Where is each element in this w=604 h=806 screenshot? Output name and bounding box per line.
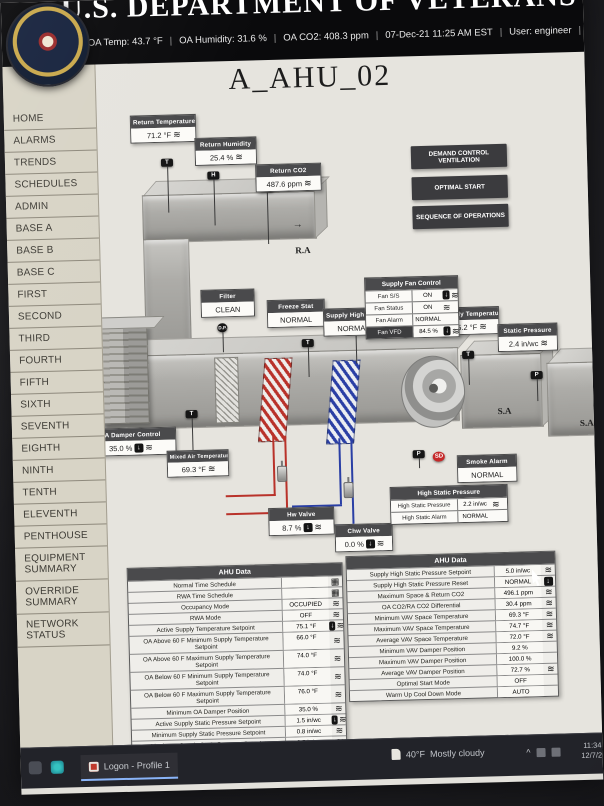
clock-date: 12/7/2021 bbox=[563, 750, 604, 761]
row-icons bbox=[544, 686, 558, 696]
ahu-data-table-right: AHU Data Supply High Static Pressure Set… bbox=[345, 551, 559, 702]
sidebar-item-tenth[interactable]: TENTH bbox=[13, 480, 106, 504]
row-icons: ≋ bbox=[329, 609, 343, 619]
main-canvas: A_AHU_02 DEMAND CONTROL VENTILATION OPTI… bbox=[94, 52, 602, 749]
trend-zigzag-icon[interactable]: ≋ bbox=[545, 600, 552, 606]
box-value[interactable]: 35.0 % bbox=[109, 443, 133, 453]
sidebar-item-base-a[interactable]: BASE A bbox=[6, 216, 99, 240]
row-icons: ↓≋ bbox=[442, 289, 457, 300]
sidebar-item-network-status[interactable]: NETWORK STATUS bbox=[17, 612, 110, 647]
trend-zigzag-icon[interactable]: ≋ bbox=[547, 666, 554, 672]
trend-zigzag-icon[interactable]: ≋ bbox=[332, 600, 339, 606]
sidebar-item-base-c[interactable]: BASE C bbox=[8, 260, 101, 284]
trend-zigzag-icon[interactable]: ≋ bbox=[452, 328, 459, 334]
sidebar-item-base-b[interactable]: BASE B bbox=[7, 238, 100, 262]
trend-zigzag-icon[interactable]: ≋ bbox=[173, 131, 180, 137]
trend-zigzag-icon[interactable]: ≋ bbox=[333, 637, 340, 643]
row-label: Fan VFD bbox=[366, 326, 413, 338]
row-label: Fan Status bbox=[366, 302, 413, 314]
row-label: High Static Alarm bbox=[391, 511, 458, 524]
row-value[interactable]: 30.4 ppm bbox=[496, 598, 542, 609]
row-value[interactable]: ON bbox=[413, 302, 443, 314]
sidebar-item-trends[interactable]: TRENDS bbox=[5, 151, 98, 175]
row-icons: ↓≋ bbox=[443, 325, 458, 336]
optimal-start-button[interactable]: OPTIMAL START bbox=[411, 175, 508, 201]
trend-zigzag-icon[interactable]: ≋ bbox=[335, 691, 342, 697]
row-value: 100.0 % bbox=[497, 653, 543, 664]
static-pressure-box: Static Pressure 2.4 in/wc≋ bbox=[497, 323, 558, 353]
row-icons: ≋ bbox=[329, 631, 343, 648]
ahu-data-table-left: AHU Data Normal Time Schedule▦RWA Time S… bbox=[127, 562, 348, 753]
row-value[interactable]: 76.0 °F bbox=[285, 686, 331, 704]
row-label: High Static Pressure bbox=[391, 499, 458, 512]
manual-override-icon[interactable]: ↓ bbox=[543, 576, 552, 585]
trend-zigzag-icon[interactable]: ≋ bbox=[544, 567, 551, 573]
sidebar-item-schedules[interactable]: SCHEDULES bbox=[5, 173, 98, 197]
row-value: NORMAL bbox=[413, 314, 443, 326]
row-value[interactable]: 496.1 ppm bbox=[495, 587, 541, 598]
trend-zigzag-icon[interactable]: ≋ bbox=[443, 304, 450, 310]
sidebar-item-override-summary[interactable]: OVERRIDE SUMMARY bbox=[16, 579, 109, 614]
row-label: Fan S/S bbox=[365, 290, 412, 302]
supply-fan-control-rows: Fan S/SON↓≋Fan StatusON≋Fan AlarmNORMALF… bbox=[365, 288, 458, 338]
row-value[interactable]: 66.0 °F bbox=[283, 632, 329, 650]
row-value[interactable]: 74.7 °F bbox=[496, 620, 542, 631]
smoke-alarm-box: Smoke Alarm NORMAL bbox=[457, 454, 518, 484]
status-divider: | bbox=[500, 27, 503, 38]
temperature-sensor-icon: T bbox=[161, 159, 173, 167]
sidebar-item-ninth[interactable]: NINTH bbox=[13, 458, 106, 482]
box-value: CLEAN bbox=[215, 304, 240, 314]
row-icons bbox=[544, 675, 558, 685]
duct-front-face bbox=[460, 353, 544, 429]
box-value[interactable]: 0.0 % bbox=[345, 539, 364, 548]
pressure-sensor-icon: P bbox=[413, 450, 425, 458]
sidebar-item-eighth[interactable]: EIGHTH bbox=[12, 436, 105, 460]
row-value[interactable]: 72.0 °F bbox=[496, 631, 542, 642]
box-value: 487.6 ppm bbox=[266, 179, 302, 189]
row-value[interactable]: 2.2 in/wc bbox=[458, 498, 492, 510]
calendar-icon[interactable]: ▦ bbox=[331, 588, 340, 596]
sequence-of-operations-button[interactable]: SEQUENCE OF OPERATIONS bbox=[412, 204, 509, 230]
row-icons: ≋ bbox=[331, 703, 345, 713]
trend-zigzag-icon[interactable]: ≋ bbox=[334, 655, 341, 661]
sidebar-item-sixth[interactable]: SIXTH bbox=[11, 392, 104, 416]
return-co2-box: Return CO2 487.6 ppm≋ bbox=[255, 163, 322, 193]
temperature-sensor-icon: T bbox=[185, 410, 197, 418]
row-label: Fan Alarm bbox=[366, 314, 413, 326]
window-label: Logon - Profile 1 bbox=[104, 760, 170, 772]
status-item: Alarm Status: bbox=[588, 23, 603, 35]
row-value[interactable]: 84.5 % bbox=[413, 326, 443, 338]
trend-zigzag-icon[interactable]: ≋ bbox=[479, 323, 486, 329]
row-icons: ≋ bbox=[328, 598, 342, 608]
row-value: AUTO bbox=[498, 686, 544, 697]
weather-icon bbox=[392, 749, 401, 760]
sa-label: S.A bbox=[580, 418, 594, 428]
row-icons bbox=[543, 642, 557, 652]
trend-zigzag-icon[interactable]: ≋ bbox=[492, 501, 499, 507]
manual-override-icon[interactable]: ↓ bbox=[332, 715, 339, 724]
row-icons: ≋ bbox=[330, 649, 344, 666]
box-value: NORMAL bbox=[471, 469, 503, 479]
row-value: 9.2 % bbox=[497, 642, 543, 653]
chw-valve-actuator bbox=[343, 482, 353, 498]
freeze-stat-box: Freeze Stat NORMAL bbox=[267, 299, 326, 329]
row-value[interactable]: 35.0 % bbox=[285, 704, 331, 715]
sidebar-item-seventh[interactable]: SEVENTH bbox=[12, 414, 105, 438]
trend-zigzag-icon[interactable]: ≋ bbox=[145, 444, 152, 450]
row-value[interactable]: 72.7 % bbox=[497, 664, 543, 675]
box-value: 71.2 °F bbox=[147, 130, 171, 140]
sidebar-item-second[interactable]: SECOND bbox=[9, 304, 102, 328]
tray-icon[interactable] bbox=[536, 747, 545, 756]
mixed-air-temperature-box: Mixed Air Temperature 69.3 °F≋ bbox=[167, 449, 230, 478]
smoke-detector-icon: SD bbox=[433, 452, 446, 462]
sidebar-item-fifth[interactable]: FIFTH bbox=[10, 370, 103, 394]
chilled-water-pipe bbox=[338, 438, 342, 504]
box-value: 25.4 % bbox=[210, 152, 234, 162]
duct-front-face bbox=[546, 361, 603, 437]
sidebar-item-first[interactable]: FIRST bbox=[8, 282, 101, 306]
temperature-sensor-icon: T bbox=[302, 339, 314, 347]
header-status-bar: OA Temp: 43.7 °F|OA Humidity: 31.6 %|OA … bbox=[88, 25, 580, 49]
ra-label: R.A bbox=[295, 245, 311, 255]
row-icons: ≋ bbox=[542, 631, 556, 641]
box-value: NORMAL bbox=[280, 314, 312, 324]
trend-zigzag-icon[interactable]: ≋ bbox=[545, 589, 552, 595]
taskbar-window-button[interactable]: Logon - Profile 1 bbox=[80, 753, 178, 782]
row-icons: ▦ bbox=[328, 587, 342, 597]
trend-zigzag-icon[interactable]: ≋ bbox=[208, 466, 215, 472]
status-divider: | bbox=[376, 30, 379, 41]
org-title: U.S. DEPARTMENT OF VETERANS AFFAIRS bbox=[61, 0, 580, 26]
high-static-rows: High Static Pressure2.2 in/wc≋High Stati… bbox=[391, 497, 508, 524]
box-value: 69.3 °F bbox=[182, 464, 206, 474]
row-icons: ≋ bbox=[543, 664, 557, 674]
table-row: Fan VFD84.5 %↓≋ bbox=[366, 324, 458, 338]
row-icons: ↓≋ bbox=[332, 714, 346, 724]
row-icons: ≋ bbox=[330, 667, 344, 684]
diff-pressure-sensor-icon: D.P. bbox=[217, 323, 228, 332]
table-row: Fan AlarmNORMAL bbox=[366, 312, 458, 326]
sidebar-item-alarms[interactable]: ALARMS bbox=[4, 129, 97, 153]
status-item: OA Temp: 43.7 °F bbox=[88, 36, 163, 49]
sa-label: S.A bbox=[497, 406, 511, 416]
row-icons: ↓ bbox=[541, 576, 555, 586]
manual-override-icon[interactable]: ↓ bbox=[303, 523, 312, 532]
temperature-sensor-icon: T bbox=[462, 351, 474, 359]
trend-zigzag-icon[interactable]: ≋ bbox=[546, 611, 553, 617]
return-temperature-box: Return Temperature 71.2 °F≋ bbox=[130, 114, 197, 144]
ahu-right-rows: Supply High Static Pressure Setpoint5.0 … bbox=[347, 564, 558, 701]
trend-zigzag-icon[interactable]: ≋ bbox=[546, 633, 553, 639]
row-icons: ≋ bbox=[332, 725, 346, 735]
row-value[interactable]: 74.0 °F bbox=[284, 668, 330, 686]
trend-zigzag-icon[interactable]: ≋ bbox=[235, 154, 242, 160]
row-icons: ≋ bbox=[542, 609, 556, 619]
row-icons bbox=[543, 653, 557, 663]
photo-background: U.S. DEPARTMENT OF VETERANS AFFAIRS OA T… bbox=[0, 0, 604, 806]
trend-zigzag-icon[interactable]: ≋ bbox=[334, 673, 341, 679]
row-icons: ≋ bbox=[443, 301, 458, 312]
calendar-icon[interactable]: ▦ bbox=[331, 577, 340, 585]
status-item: 07-Dec-21 11:25 AM EST bbox=[385, 27, 493, 41]
monitor-screen: U.S. DEPARTMENT OF VETERANS AFFAIRS OA T… bbox=[1, 0, 604, 795]
trend-zigzag-icon[interactable]: ≋ bbox=[546, 622, 553, 628]
status-divider: | bbox=[170, 36, 173, 47]
trend-zigzag-icon[interactable]: ≋ bbox=[337, 622, 344, 628]
row-value[interactable]: 74.0 °F bbox=[284, 650, 330, 668]
cooling-coil bbox=[326, 360, 361, 445]
filter-media bbox=[214, 357, 240, 424]
row-value[interactable]: OFF bbox=[283, 610, 329, 621]
sidebar-item-eleventh[interactable]: ELEVENTH bbox=[14, 502, 107, 526]
sidebar-item-home[interactable]: HOME bbox=[4, 107, 97, 131]
trend-zigzag-icon[interactable]: ≋ bbox=[339, 716, 346, 722]
row-value: OFF bbox=[498, 675, 544, 686]
row-icons: ≋ bbox=[541, 565, 555, 575]
hot-water-pipe bbox=[272, 436, 276, 496]
sidebar: HOMEALARMSTRENDSSCHEDULESADMINBASE ABASE… bbox=[2, 65, 113, 755]
row-value[interactable]: 75.1 °F bbox=[283, 621, 329, 632]
demand-control-ventilation-button[interactable]: DEMAND CONTROL VENTILATION bbox=[411, 144, 508, 170]
row-icons: ▦ bbox=[328, 576, 342, 586]
row-value: NORMAL bbox=[458, 510, 492, 522]
row-value[interactable] bbox=[282, 588, 328, 599]
ahu-left-rows: Normal Time Schedule▦RWA Time Schedule▦O… bbox=[128, 575, 346, 752]
row-icons: ≋ bbox=[542, 598, 556, 608]
box-value[interactable]: 8.7 % bbox=[282, 523, 301, 532]
pressure-sensor-icon: P bbox=[531, 371, 543, 379]
weather-desc: Mostly cloudy bbox=[430, 747, 485, 758]
manual-override-icon[interactable]: ↓ bbox=[442, 290, 450, 299]
row-value[interactable]: 1.5 in/wc bbox=[286, 715, 332, 726]
supply-duct-b bbox=[546, 347, 603, 437]
taskbar-app-icon[interactable] bbox=[29, 761, 42, 774]
trend-zigzag-icon[interactable]: ≋ bbox=[304, 180, 311, 186]
status-divider: | bbox=[578, 25, 581, 36]
sidebar-item-admin[interactable]: ADMIN bbox=[6, 195, 99, 219]
trend-zigzag-icon[interactable]: ≋ bbox=[540, 340, 547, 346]
high-static-pressure-table: High Static Pressure High Static Pressur… bbox=[390, 484, 509, 525]
table-row: Fan StatusON≋ bbox=[366, 300, 458, 314]
status-item: OA Humidity: 31.6 % bbox=[179, 33, 267, 46]
row-icons: ≋ bbox=[542, 620, 556, 630]
weather-temp: 40°F bbox=[406, 749, 425, 759]
chilled-water-pipe bbox=[350, 438, 354, 524]
box-value: 2.4 in/wc bbox=[509, 339, 539, 349]
tray-icon[interactable] bbox=[551, 747, 560, 756]
heating-coil bbox=[258, 357, 293, 442]
filter-status-box: Filter CLEAN bbox=[200, 288, 255, 317]
sidebar-item-third[interactable]: THIRD bbox=[9, 326, 102, 350]
row-icons: ↓≋ bbox=[329, 620, 343, 630]
humidity-sensor-icon: H bbox=[207, 171, 219, 179]
sidebar-item-penthouse[interactable]: PENTHOUSE bbox=[14, 524, 107, 548]
tray-expand-icon[interactable]: ^ bbox=[526, 747, 530, 757]
row-value[interactable] bbox=[282, 577, 328, 588]
row-icons: ≋ bbox=[331, 685, 345, 702]
browser-icon bbox=[89, 762, 99, 772]
header-status: OA Temp: 43.7 °F|OA Humidity: 31.6 %|OA … bbox=[88, 23, 604, 49]
row-icons bbox=[443, 313, 458, 324]
row-value[interactable]: 69.3 °F bbox=[496, 609, 542, 620]
trend-zigzag-icon[interactable]: ≋ bbox=[335, 705, 342, 711]
taskbar-tray[interactable]: ^ bbox=[526, 747, 560, 758]
row-icons: ≋ bbox=[541, 587, 555, 597]
row-icons bbox=[492, 510, 507, 521]
taskbar-weather[interactable]: 40°F Mostly cloudy bbox=[392, 747, 485, 760]
sidebar-menu: HOMEALARMSTRENDSSCHEDULESADMINBASE ABASE… bbox=[4, 107, 110, 648]
manual-override-icon[interactable]: ↓ bbox=[134, 443, 143, 452]
taskbar-app-icon[interactable] bbox=[51, 761, 64, 774]
supply-fan-control-table: Supply Fan Control Fan S/SON↓≋Fan Status… bbox=[364, 275, 460, 339]
sidebar-item-fourth[interactable]: FOURTH bbox=[10, 348, 103, 372]
manual-override-icon[interactable]: ↓ bbox=[443, 326, 451, 335]
row-value[interactable]: OCCUPIED bbox=[282, 599, 328, 610]
row-value[interactable]: ON bbox=[412, 290, 442, 302]
trend-zigzag-icon[interactable]: ≋ bbox=[314, 524, 321, 530]
row-value[interactable]: 0.8 in/wc bbox=[286, 726, 332, 737]
trend-zigzag-icon[interactable]: ≋ bbox=[451, 292, 458, 298]
table-row: Fan S/SON↓≋ bbox=[365, 288, 457, 302]
trend-zigzag-icon[interactable]: ≋ bbox=[377, 540, 384, 546]
trend-zigzag-icon[interactable]: ≋ bbox=[336, 727, 343, 733]
manual-override-icon[interactable]: ↓ bbox=[329, 621, 336, 630]
ra-flow-arrow-icon: → bbox=[293, 219, 303, 230]
chw-valve-box: Chw Valve 0.0 %↓≋ bbox=[335, 523, 394, 553]
hw-valve-box: Hw Valve 8.7 %↓≋ bbox=[268, 506, 335, 536]
hot-water-pipe bbox=[226, 494, 276, 497]
status-item: OA CO2: 408.3 ppm bbox=[283, 30, 369, 43]
manual-override-icon[interactable]: ↓ bbox=[366, 539, 375, 548]
trend-zigzag-icon[interactable]: ≋ bbox=[333, 611, 340, 617]
status-divider: | bbox=[274, 33, 277, 44]
status-item: User: engineer bbox=[509, 25, 572, 38]
row-icons: ≋ bbox=[492, 498, 507, 509]
taskbar-clock[interactable]: 11:34 AM 12/7/2021 bbox=[562, 740, 603, 761]
sidebar-item-equipment-summary[interactable]: EQUIPMENT SUMMARY bbox=[15, 546, 108, 581]
hw-valve-actuator bbox=[277, 466, 287, 482]
return-humidity-box: Return Humidity 25.4 %≋ bbox=[194, 136, 257, 166]
